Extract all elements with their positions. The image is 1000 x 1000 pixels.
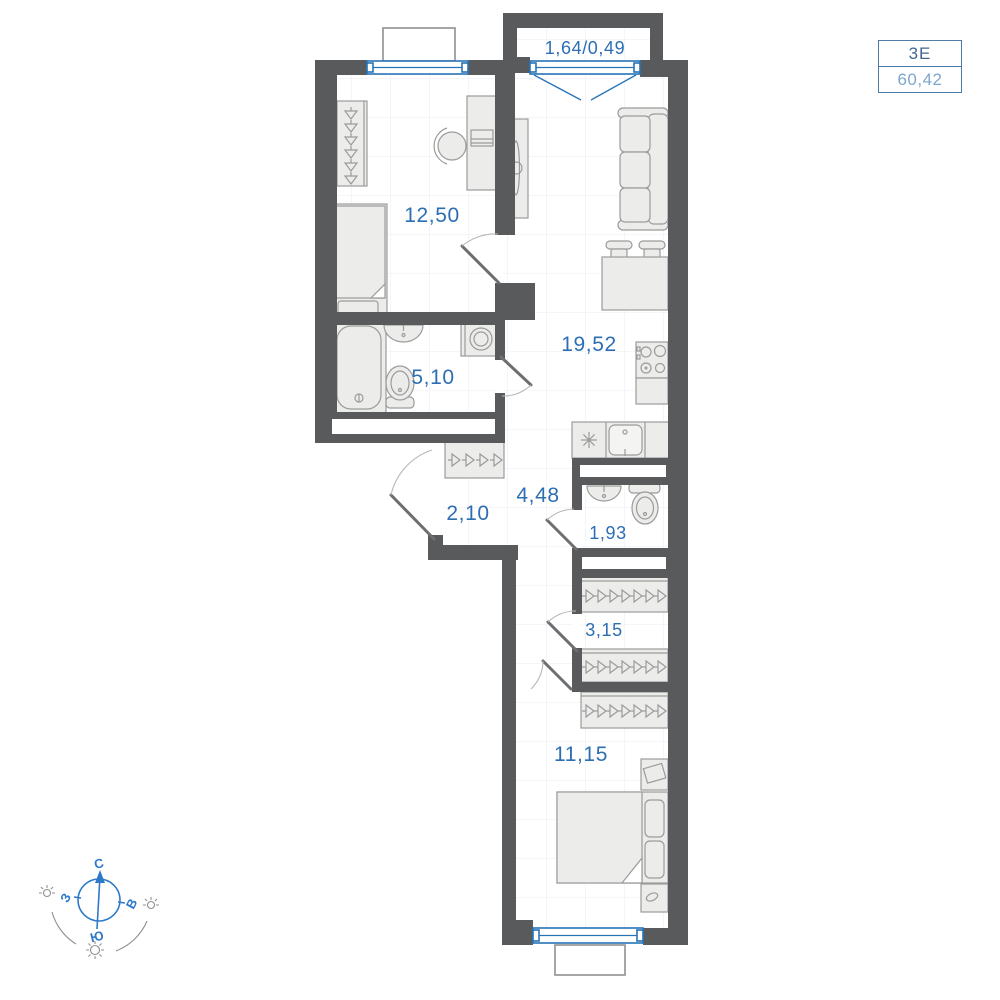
nightstand-bottom xyxy=(641,884,668,912)
room-area-label: 1,93 xyxy=(589,523,626,543)
sun-path-arc xyxy=(52,912,76,944)
floor-plan-page: 1,64/0,49 12,50 19,52 5,10 2,10 4,48 1,9… xyxy=(0,0,1000,1000)
hall-wardrobe xyxy=(445,442,504,478)
bed-double xyxy=(557,792,668,883)
room1-wardrobe xyxy=(337,101,367,186)
sun-path-arc xyxy=(116,921,147,951)
room-area-label: 5,10 xyxy=(411,366,454,389)
stove xyxy=(636,342,668,378)
floor-plan-svg: 1,64/0,49 12,50 19,52 5,10 2,10 4,48 1,9… xyxy=(0,0,1000,1000)
fridge-symbol xyxy=(581,432,597,448)
vent-shaft-slot xyxy=(582,557,666,569)
compass-west-label: З xyxy=(57,891,74,905)
kitchen-lower-counter xyxy=(572,422,672,458)
bed-single xyxy=(332,204,387,317)
nightstand-top xyxy=(641,759,668,790)
balcony-box-top xyxy=(383,28,455,61)
room-area-label: 3,15 xyxy=(585,620,622,640)
closet-rail-top xyxy=(581,577,668,612)
bedroom-wardrobe xyxy=(581,692,668,728)
sun-noon-icon xyxy=(86,941,104,959)
compass-east-label: В xyxy=(123,896,141,911)
window-bedroom xyxy=(533,928,643,943)
bathtub xyxy=(332,321,386,416)
compass-south-label: Ю xyxy=(89,928,106,946)
compass-north-label: С xyxy=(93,855,106,872)
plan-type-label: 3Е xyxy=(879,41,961,66)
closet-rail-bottom xyxy=(581,649,668,682)
vent-shaft-slot xyxy=(580,465,666,477)
room-area-label: 12,50 xyxy=(404,204,460,227)
door-entrance xyxy=(391,450,434,539)
kitchen-sink xyxy=(609,425,642,456)
room-area-label: 2,10 xyxy=(446,502,489,525)
compass: С Ю З В xyxy=(39,855,159,959)
room-area-label: 4,48 xyxy=(516,484,559,507)
plan-info-box: 3Е 60,42 xyxy=(878,40,962,93)
room-area-label: 1,64/0,49 xyxy=(545,38,625,58)
balcony-box-bottom xyxy=(555,945,625,975)
vent-shaft-slot xyxy=(332,419,495,434)
room-area-label: 19,52 xyxy=(561,333,617,356)
sofa xyxy=(618,108,668,230)
sunrise-icon xyxy=(143,897,159,909)
sunset-icon xyxy=(39,885,55,897)
room-area-label: 11,15 xyxy=(554,743,608,766)
kitchen-counter xyxy=(636,378,668,404)
desk xyxy=(467,96,497,190)
window-room1 xyxy=(367,61,468,74)
washing-machine xyxy=(461,322,497,356)
compass-needle-arrow xyxy=(95,870,105,883)
bathroom-toilet xyxy=(386,366,414,408)
total-area-label: 60,42 xyxy=(879,66,961,92)
